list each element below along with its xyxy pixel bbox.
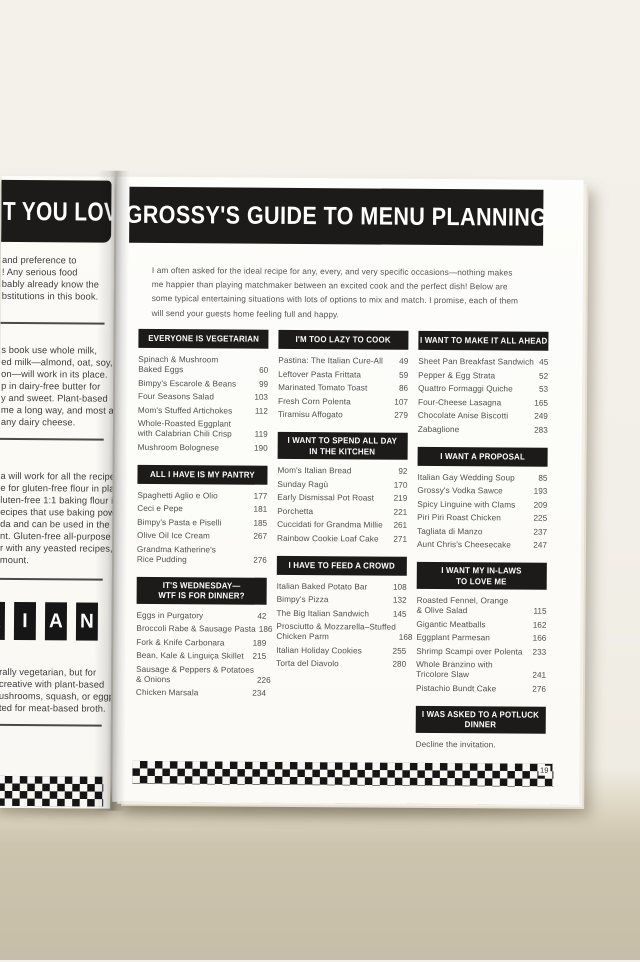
recipe-row: Bimpy's Pizza 132 <box>277 595 407 606</box>
recipe-row: Fork & Knife Carbonara 189 <box>136 637 266 648</box>
text-line-fragment: s book use whole milk, <box>1 344 113 357</box>
section-header-label: I WAS ASKED TO A POTLUCK DINNER <box>422 708 539 730</box>
recipe-row: Spaghetti Aglio e Olio 177 <box>137 490 267 501</box>
recipe-name: Italian Gay Wedding Soup <box>417 472 514 483</box>
recipe-page-number: 59 <box>396 370 408 380</box>
recipe-name: Zabaglione <box>418 424 460 434</box>
recipe-row: Bean, Kale & Linguiça Skillet 215 <box>136 651 266 662</box>
recipe-row: Italian Gay Wedding Soup 85 <box>417 472 547 483</box>
recipe-row: Bimpy's Escarole & Beans 99 <box>138 378 268 389</box>
recipe-name: Spicy Linguine with Clams <box>417 499 515 510</box>
recipe-name: Spaghetti Aglio e Olio <box>137 490 218 501</box>
section-header-banner: EVERYONE IS VEGETARIAN <box>138 329 268 349</box>
recipe-row: Prosciutto & Mozzarella–Stuffed Chicken … <box>276 622 406 643</box>
recipe-name: Mom's Stuffed Artichokes <box>138 405 232 416</box>
recipe-row: Roasted Fennel, Orange & Olive Salad 115 <box>416 596 546 617</box>
recipe-page-number: 162 <box>530 620 547 630</box>
recipe-row: Zabaglione 283 <box>418 424 548 435</box>
recipe-name: Fork & Knife Carbonara <box>136 637 224 648</box>
recipe-row: Grossy's Vodka Sawce 193 <box>417 486 547 497</box>
recipe-name: Leftover Pasta Frittata <box>278 369 361 380</box>
section-header-label: ALL I HAVE IS MY PANTRY <box>150 469 255 480</box>
recipe-row: Tiramisu Affogato 279 <box>278 410 408 421</box>
page-number: 19 <box>538 766 550 776</box>
section-rows: Spaghetti Aglio e Olio 177 Ceci e Pepe 1… <box>137 490 268 565</box>
text-line-fragment: on—will work in its place. <box>1 368 113 381</box>
recipe-name: Eggs in Purgatory <box>136 610 203 620</box>
text-line-fragment: e for gluten-free flour in place <box>0 482 112 495</box>
recipe-name: Shrimp Scampi over Polenta <box>416 646 522 657</box>
recipe-row: The Big Italian Sandwich 145 <box>276 608 406 619</box>
menu-section: I HAVE TO FEED A CROWD Italian Baked Pot… <box>276 555 407 669</box>
text-line-fragment: any dairy cheese. <box>1 416 113 429</box>
recipe-page-number: 225 <box>530 514 547 524</box>
left-banner-text-fragment: T YOU LOVE <box>1 195 114 227</box>
recipe-page-number: 60 <box>256 366 268 376</box>
section-header-label: I HAVE TO FEED A CROWD <box>289 560 395 571</box>
recipe-name: Tiramisu Affogato <box>278 410 343 420</box>
recipe-row: Chocolate Anise Biscotti 249 <box>418 411 548 422</box>
left-text-block: s book use whole milk,ed milk—almond, oa… <box>1 344 114 429</box>
letter-tiles: RIAN <box>0 602 99 641</box>
section-rows: Roasted Fennel, Orange & Olive Salad 115… <box>416 596 547 694</box>
recipe-name: Sheet Pan Breakfast Sandwich <box>418 357 534 368</box>
recipe-page-number: 181 <box>251 505 268 515</box>
recipe-page-number: 107 <box>391 397 408 407</box>
recipe-name: Bean, Kale & Linguiça Skillet <box>136 651 244 662</box>
text-line-fragment: creative with plant-based <box>0 678 111 691</box>
recipe-page-number: 219 <box>391 494 408 504</box>
recipe-page-number: 193 <box>531 487 548 497</box>
recipe-name: Spinach & Mushroom Baked Eggs <box>138 355 218 376</box>
left-page: T YOU LOVE and preference to! Any seriou… <box>0 176 115 809</box>
recipe-name: Whole-Roasted Eggplant with Calabrian Ch… <box>138 419 232 440</box>
text-line-fragment: me a long way, and most are <box>1 404 113 417</box>
recipe-row: Gigantic Meatballs 162 <box>416 619 546 630</box>
letter-tile: R <box>0 602 5 640</box>
recipe-page-number: 145 <box>390 609 407 619</box>
recipe-name: Mushroom Bolognese <box>138 442 220 453</box>
recipe-row: Spinach & Mushroom Baked Eggs 60 <box>138 355 268 376</box>
recipe-row: Porchetta 221 <box>277 506 407 517</box>
section-header-label: I WANT MY IN-LAWS TO LOVE ME <box>442 565 522 587</box>
recipe-page-number: 165 <box>531 398 548 408</box>
section-rows: Italian Baked Potato Bar 108 Bimpy's Piz… <box>276 581 407 669</box>
recipe-row: Aunt Chris's Cheesecake 247 <box>417 540 547 551</box>
text-line-fragment: nt. Gluten-free all-purpose <box>0 530 112 543</box>
section-header-label: I WANT TO MAKE IT ALL AHEAD <box>420 335 548 346</box>
recipe-name: Whole Branzino with Tricolore Slaw <box>416 660 493 681</box>
recipe-page-number: 112 <box>252 406 268 416</box>
checkerboard-strip <box>0 776 103 807</box>
section-header-banner: I WANT TO MAKE IT ALL AHEAD <box>418 331 548 351</box>
text-line-fragment: and preference to <box>2 254 114 267</box>
recipe-name: Roasted Fennel, Orange & Olive Salad <box>416 596 508 617</box>
recipe-page-number: 280 <box>389 660 406 670</box>
recipe-row: Tagliata di Manzo 237 <box>417 526 547 537</box>
left-text-block: rally vegetarian, but forcreative with p… <box>0 666 111 715</box>
recipe-page-number: 255 <box>390 646 407 656</box>
section-rows: Pastina: The Italian Cure-All 49 Leftove… <box>278 356 408 421</box>
recipe-page-number: 185 <box>250 518 267 528</box>
menu-columns: EVERYONE IS VEGETARIAN Spinach & Mushroo… <box>135 329 548 762</box>
section-header-banner: I WANT MY IN-LAWS TO LOVE ME <box>417 562 547 590</box>
recipe-page-number: 177 <box>251 491 268 501</box>
intro-paragraph: I am often asked for the ideal recipe fo… <box>152 263 522 322</box>
text-line-fragment: ushrooms, squash, or eggplant, <box>0 690 111 703</box>
recipe-page-number: 99 <box>256 379 268 389</box>
recipe-name: Four Seasons Salad <box>138 392 214 403</box>
text-line-fragment: mount. <box>0 554 112 567</box>
text-line-fragment: p in dairy-free butter for <box>1 380 113 393</box>
section-header-banner: I WAS ASKED TO A POTLUCK DINNER <box>416 705 546 733</box>
recipe-name: Sunday Ragù <box>277 479 328 489</box>
recipe-name: Quattro Formaggi Quiche <box>418 384 513 395</box>
recipe-row: Pistachio Bundt Cake 276 <box>416 683 546 694</box>
letter-tile: I <box>14 602 36 640</box>
menu-section: I WANT MY IN-LAWS TO LOVE ME Roasted Fen… <box>416 562 547 694</box>
text-line-fragment: ted for meat-based broth. <box>0 702 111 715</box>
recipe-row: Chicken Marsala 234 <box>136 688 266 699</box>
text-line-fragment: da and can be used in the <box>0 518 112 531</box>
recipe-name: Eggplant Parmesan <box>416 633 490 644</box>
recipe-name: Pistachio Bundt Cake <box>416 683 496 694</box>
section-header-banner: I HAVE TO FEED A CROWD <box>277 555 407 575</box>
recipe-page-number: 276 <box>529 684 546 694</box>
recipe-row: Torta del Diavolo 280 <box>276 659 406 670</box>
recipe-page-number: 241 <box>529 671 546 681</box>
menu-column-3: I WANT TO MAKE IT ALL AHEAD Sheet Pan Br… <box>415 331 548 762</box>
text-line-fragment: ecipes that use baking powder <box>0 506 112 519</box>
recipe-name: Four-Cheese Lasagna <box>418 397 501 408</box>
section-header-banner: I WANT TO SPEND ALL DAY IN THE KITCHEN <box>278 432 408 460</box>
text-line-fragment: y and sweet. Plant-based <box>1 392 113 405</box>
recipe-row: Eggs in Purgatory 42 <box>136 610 266 621</box>
recipe-row: Whole-Roasted Eggplant with Calabrian Ch… <box>138 419 268 440</box>
recipe-name: Piri Piri Roast Chicken <box>417 513 501 524</box>
left-text-block: and preference to! Any serious foodbably… <box>2 254 114 303</box>
recipe-name: Olive Oil Ice Cream <box>137 531 210 542</box>
recipe-page-number: 261 <box>390 521 407 531</box>
recipe-name: Early Dismissal Pot Roast <box>277 493 374 504</box>
recipe-row: Bimpy's Pasta e Piselli 185 <box>137 517 267 528</box>
recipe-row: Spicy Linguine with Clams 209 <box>417 499 547 510</box>
recipe-page-number: 132 <box>390 596 407 606</box>
recipe-row: Mom's Stuffed Artichokes 112 <box>138 405 268 416</box>
recipe-row: Leftover Pasta Frittata 59 <box>278 369 408 380</box>
recipe-page-number: 115 <box>530 607 546 617</box>
recipe-page-number: 233 <box>530 647 547 657</box>
recipe-name: Pepper & Egg Strata <box>418 370 495 381</box>
checkerboard-strip: 19 <box>132 761 553 787</box>
recipe-page-number: 186 <box>256 625 273 635</box>
divider <box>1 322 105 324</box>
recipe-page-number: 221 <box>391 507 408 517</box>
divider <box>0 724 102 726</box>
section-rows: Mom's Italian Bread 92 Sunday Ragù 170 E… <box>277 466 408 544</box>
recipe-page-number: 190 <box>251 443 268 453</box>
recipe-name: Gigantic Meatballs <box>416 619 485 629</box>
section-rows: Eggs in Purgatory 42 Broccoli Rabe & Sau… <box>136 610 267 698</box>
text-line-fragment: ed milk—almond, oat, soy, <box>1 356 113 369</box>
recipe-name: The Big Italian Sandwich <box>276 608 369 619</box>
recipe-page-number: 86 <box>396 384 408 394</box>
recipe-page-number: 276 <box>250 555 267 565</box>
menu-column-2: I'M TOO LAZY TO COOK Pastina: The Italia… <box>276 330 408 682</box>
section-header-banner: ALL I HAVE IS MY PANTRY <box>137 464 267 484</box>
section-header-banner: IT'S WEDNESDAY— WTF IS FOR DINNER? <box>137 576 267 604</box>
recipe-name: Prosciutto & Mozzarella–Stuffed Chicken … <box>276 622 396 643</box>
recipe-page-number: 166 <box>530 634 547 644</box>
recipe-page-number: 209 <box>531 500 548 510</box>
recipe-row: Rainbow Cookie Loaf Cake 271 <box>277 533 407 544</box>
recipe-name: Ceci e Pepe <box>137 504 183 514</box>
recipe-row: Pepper & Egg Strata 52 <box>418 370 548 381</box>
section-rows: Italian Gay Wedding Soup 85 Grossy's Vod… <box>417 472 548 550</box>
recipe-page-number: 267 <box>250 532 267 542</box>
section-header-label: I WANT TO SPEND ALL DAY IN THE KITCHEN <box>288 435 398 457</box>
recipe-name: Chocolate Anise Biscotti <box>418 411 508 422</box>
recipe-row: Whole Branzino with Tricolore Slaw 241 <box>416 660 546 681</box>
recipe-name: Rainbow Cookie Loaf Cake <box>277 533 379 544</box>
recipe-row: Pastina: The Italian Cure-All 49 <box>278 356 408 367</box>
section-header-label: I'M TOO LAZY TO COOK <box>296 334 391 345</box>
recipe-page-number: 279 <box>391 411 408 421</box>
recipe-row: Fresh Corn Polenta 107 <box>278 396 408 407</box>
recipe-name: Porchetta <box>277 506 313 516</box>
recipe-row: Ceci e Pepe 181 <box>137 504 267 515</box>
recipe-page-number: 49 <box>396 357 408 367</box>
recipe-page-number: 283 <box>531 425 548 435</box>
recipe-page-number: 45 <box>536 358 548 368</box>
recipe-page-number: 215 <box>250 652 267 662</box>
menu-section: ALL I HAVE IS MY PANTRY Spaghetti Aglio … <box>137 464 268 565</box>
recipe-name: Italian Holiday Cookies <box>276 645 362 656</box>
recipe-name: Aunt Chris's Cheesecake <box>417 540 511 551</box>
left-text-block: a will work for all the recipese for glu… <box>0 470 113 567</box>
recipe-page-number: 119 <box>252 430 268 440</box>
section-header-label: I WANT A PROPOSAL <box>440 451 525 462</box>
menu-section: I'M TOO LAZY TO COOK Pastina: The Italia… <box>278 330 409 421</box>
recipe-row: Four-Cheese Lasagna 165 <box>418 397 548 408</box>
recipe-page-number: 170 <box>391 480 408 490</box>
page-title-banner: GROSSY'S GUIDE TO MENU PLANNING <box>129 187 543 246</box>
recipe-name: Bimpy's Pizza <box>277 595 329 605</box>
recipe-page-number: 271 <box>390 534 407 544</box>
recipe-row: Italian Baked Potato Bar 108 <box>277 581 407 592</box>
recipe-name: Tagliata di Manzo <box>417 526 482 536</box>
menu-section: EVERYONE IS VEGETARIAN Spinach & Mushroo… <box>138 329 269 453</box>
recipe-row: Quattro Formaggi Quiche 53 <box>418 384 548 395</box>
text-line-fragment: ! Any serious food <box>2 266 114 279</box>
recipe-page-number: 226 <box>254 675 271 685</box>
recipe-row: Broccoli Rabe & Sausage Pasta 186 <box>136 624 266 635</box>
recipe-page-number: 189 <box>250 638 267 648</box>
recipe-page-number: 108 <box>390 582 407 592</box>
recipe-row: Sunday Ragù 170 <box>277 479 407 490</box>
recipe-name: Broccoli Rabe & Sausage Pasta <box>136 624 255 635</box>
recipe-row: Italian Holiday Cookies 255 <box>276 645 406 656</box>
recipe-row: Piri Piri Roast Chicken 225 <box>417 513 547 524</box>
recipe-name: Cuccidati for Grandma Millie <box>277 520 383 531</box>
recipe-page-number: 92 <box>395 467 407 477</box>
left-page-section-banner: T YOU LOVE <box>1 180 111 243</box>
recipe-row: Sausage & Peppers & Potatoes & Onions 22… <box>136 664 266 685</box>
recipe-row: Grandma Katherine's Rice Pudding 276 <box>137 544 267 565</box>
recipe-name: Marinated Tomato Toast <box>278 383 367 394</box>
recipe-row: Mushroom Bolognese 190 <box>138 442 268 453</box>
recipe-name: Bimpy's Escarole & Beans <box>138 378 236 389</box>
menu-column-1: EVERYONE IS VEGETARIAN Spinach & Mushroo… <box>136 329 269 711</box>
recipe-row: Sheet Pan Breakfast Sandwich 45 <box>418 357 548 368</box>
recipe-row: Early Dismissal Pot Roast 219 <box>277 493 407 504</box>
recipe-row: Four Seasons Salad 103 <box>138 392 268 403</box>
text-line-fragment: bably already know the <box>2 278 114 291</box>
menu-section: I WANT TO SPEND ALL DAY IN THE KITCHEN M… <box>277 432 408 544</box>
recipe-row: Shrimp Scampi over Polenta 233 <box>416 646 546 657</box>
text-line-fragment: bstitutions in this book. <box>2 290 114 303</box>
divider <box>0 578 103 580</box>
page-title: GROSSY'S GUIDE TO MENU PLANNING <box>125 200 547 232</box>
recipe-name: Grandma Katherine's Rice Pudding <box>137 544 216 565</box>
recipe-row: Cuccidati for Grandma Millie 261 <box>277 520 407 531</box>
menu-section: I WANT TO MAKE IT ALL AHEAD Sheet Pan Br… <box>418 331 549 435</box>
recipe-page-number: 247 <box>530 541 547 551</box>
recipe-name: Italian Baked Potato Bar <box>277 581 368 592</box>
recipe-name: Torta del Diavolo <box>276 659 339 669</box>
recipe-page-number: 249 <box>531 412 548 422</box>
recipe-page-number: 103 <box>251 393 268 403</box>
recipe-row: Mom's Italian Bread 92 <box>277 466 407 477</box>
section-rows: Sheet Pan Breakfast Sandwich 45 Pepper &… <box>418 357 549 435</box>
text-line-fragment: luten-free 1:1 baking flour is <box>0 494 112 507</box>
section-rows: Spinach & Mushroom Baked Eggs 60 Bimpy's… <box>138 355 269 453</box>
menu-section: IT'S WEDNESDAY— WTF IS FOR DINNER? Eggs … <box>136 576 267 698</box>
letter-tile: A <box>45 602 67 640</box>
recipe-page-number: 234 <box>249 689 266 699</box>
recipe-name: Pastina: The Italian Cure-All <box>278 356 383 367</box>
recipe-page-number: 237 <box>530 527 547 537</box>
recipe-page-number: 168 <box>396 633 413 643</box>
text-line-fragment: r with any yeasted recipes, <box>0 542 112 555</box>
recipe-page-number: 42 <box>254 611 266 621</box>
recipe-page-number: 85 <box>535 473 547 483</box>
letter-tile: N <box>76 602 98 640</box>
recipe-name: Fresh Corn Polenta <box>278 396 351 407</box>
recipe-name: Bimpy's Pasta e Piselli <box>137 517 221 528</box>
recipe-name: Mom's Italian Bread <box>277 466 351 477</box>
recipe-row: Olive Oil Ice Cream 267 <box>137 531 267 542</box>
text-line-fragment: a will work for all the recipes <box>0 470 112 483</box>
section-note: Decline the invitation. <box>416 739 546 750</box>
menu-section: I WANT A PROPOSAL Italian Gay Wedding So… <box>417 446 548 550</box>
recipe-name: Chicken Marsala <box>136 688 199 698</box>
section-header-banner: I WANT A PROPOSAL <box>418 446 548 466</box>
recipe-name: Sausage & Peppers & Potatoes & Onions <box>136 664 254 685</box>
recipe-row: Eggplant Parmesan 166 <box>416 633 546 644</box>
divider <box>0 438 104 440</box>
recipe-page-number: 53 <box>536 385 548 395</box>
recipe-row: Marinated Tomato Toast 86 <box>278 383 408 394</box>
section-header-label: IT'S WEDNESDAY— WTF IS FOR DINNER? <box>158 580 244 602</box>
open-cookbook: T YOU LOVE and preference to! Any seriou… <box>0 0 640 962</box>
recipe-page-number: 52 <box>536 371 548 381</box>
recipe-name: Grossy's Vodka Sawce <box>417 486 503 497</box>
right-page: GROSSY'S GUIDE TO MENU PLANNING I am oft… <box>112 177 583 805</box>
text-line-fragment: rally vegetarian, but for <box>0 666 111 679</box>
section-header-label: EVERYONE IS VEGETARIAN <box>148 333 259 344</box>
section-header-banner: I'M TOO LAZY TO COOK <box>278 330 408 350</box>
menu-section: I WAS ASKED TO A POTLUCK DINNER Decline … <box>416 705 546 750</box>
